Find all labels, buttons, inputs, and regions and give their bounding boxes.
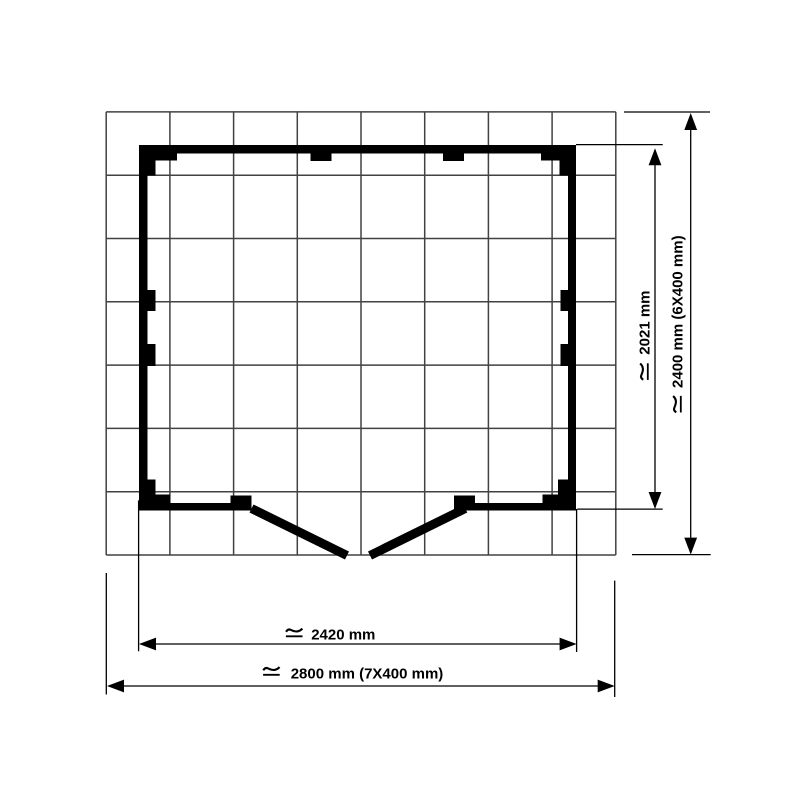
svg-text:2021 mm: 2021 mm — [637, 290, 654, 354]
svg-text:2420 mm: 2420 mm — [311, 627, 375, 644]
svg-text:2400 mm (6X400 mm): 2400 mm (6X400 mm) — [670, 235, 687, 388]
svg-text:2800 mm (7X400 mm): 2800 mm (7X400 mm) — [291, 665, 444, 682]
